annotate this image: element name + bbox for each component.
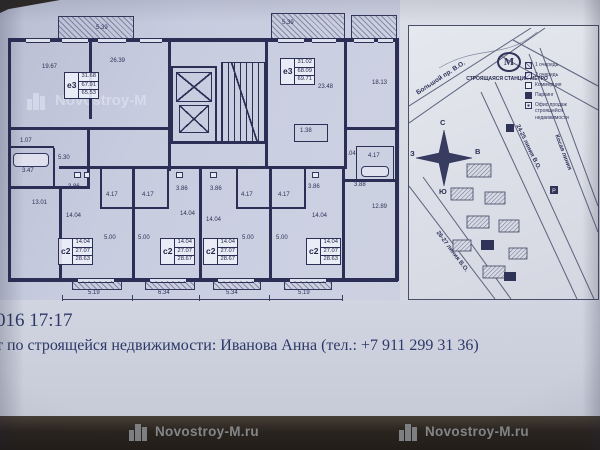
legend-label: 2 очередь xyxy=(535,72,558,78)
dim-label: 5.00 xyxy=(276,235,288,241)
dim-label: 8.04 xyxy=(344,151,356,157)
location-map: Р М СТРОЯЩАЯСЯ СТАНЦИЯ МЕТРО Большой пр.… xyxy=(408,25,599,300)
dim-label: 14.04 xyxy=(180,211,195,217)
legend-item: Офис продаж строящейся недвижимости xyxy=(525,102,593,121)
paper-lower-band xyxy=(0,300,600,417)
legend-label: 1 очередь xyxy=(535,62,558,68)
wall xyxy=(59,188,62,280)
legend-label: Офис продаж строящейся недвижимости xyxy=(535,102,593,121)
site-watermark-left: Novostroy-M.ru xyxy=(128,421,259,441)
kitchen-fixture xyxy=(210,172,217,178)
dim-label: 3.86 xyxy=(210,186,222,192)
apartment-area: 27.07 xyxy=(175,248,194,257)
contact-line: т по строящейся недвижимости: Иванова Ан… xyxy=(0,337,479,355)
wall xyxy=(236,207,305,209)
staircase xyxy=(221,62,268,142)
dim-label: 3.86 xyxy=(308,184,320,190)
dimension-tick xyxy=(269,295,270,301)
dim-label: 4.17 xyxy=(142,192,154,198)
dim-label: 5.34 xyxy=(226,290,238,296)
dim-label: 6.34 xyxy=(158,290,170,296)
bathtub xyxy=(13,153,49,167)
dim-label: 5.00 xyxy=(242,235,254,241)
wall xyxy=(269,169,272,279)
dim-label: 5.19 xyxy=(298,290,310,296)
dim-label: 19.67 xyxy=(42,64,57,70)
balcony xyxy=(284,281,332,290)
wall xyxy=(344,127,398,130)
dimension-line xyxy=(62,299,343,300)
legend-label: Паркинг xyxy=(535,92,554,98)
parking-letter: Р xyxy=(552,189,556,195)
apartment-area: 28.67 xyxy=(218,256,237,264)
wall xyxy=(236,169,238,209)
apartment-code: е3 xyxy=(281,59,294,84)
wall xyxy=(10,146,54,148)
apartment-area: 31.02 xyxy=(295,59,314,68)
wall xyxy=(87,129,90,189)
studio-label-4: с2 14.04 27.07 28.63 xyxy=(306,238,341,265)
wall xyxy=(8,278,398,282)
dim-label: 14.04 xyxy=(312,213,327,219)
apartment-code: с2 xyxy=(307,239,320,264)
compass-west: З xyxy=(410,149,415,158)
balcony xyxy=(72,281,122,290)
dim-label: 13.01 xyxy=(32,200,47,206)
wall xyxy=(395,38,399,281)
apartment-code: с2 xyxy=(204,239,217,264)
wall xyxy=(132,169,135,279)
apartment-code: е3 xyxy=(65,73,78,98)
dimension-tick xyxy=(62,295,63,301)
dim-label: 3.47 xyxy=(22,168,34,174)
dim-label: 18.13 xyxy=(372,80,387,86)
elevator-cabin xyxy=(176,72,212,102)
studio-label-3: с2 14.04 27.07 28.67 xyxy=(203,238,238,265)
wall xyxy=(53,148,55,188)
balcony xyxy=(213,281,261,290)
dim-label: 5.39 xyxy=(282,20,294,26)
apartment-code: с2 xyxy=(59,239,72,264)
dim-label: 5.39 xyxy=(96,25,108,31)
dim-label: 3.86 xyxy=(68,184,80,190)
dim-label: 4.17 xyxy=(106,192,118,198)
apartment-area: 69.71 xyxy=(295,76,314,84)
apartment-area: 28.63 xyxy=(73,256,92,264)
dim-label: 1.38 xyxy=(300,128,312,134)
wall xyxy=(8,38,11,281)
legend-item: Паркинг xyxy=(525,92,593,99)
dim-label: 5.00 xyxy=(138,235,150,241)
map-legend: 1 очередь 2 очередь Коммерция Паркинг Оф… xyxy=(525,62,593,124)
dim-label: 23.48 xyxy=(318,84,333,90)
apartment-code: с2 xyxy=(161,239,174,264)
legend-swatch-parking xyxy=(525,92,532,99)
compass-east: В xyxy=(475,147,480,156)
apartment-area: 14.04 xyxy=(73,239,92,248)
window xyxy=(98,38,126,43)
apartment-area: 28.63 xyxy=(321,256,340,264)
dim-label: 26.39 xyxy=(110,58,125,64)
kitchen-fixture xyxy=(176,172,183,178)
window xyxy=(62,38,88,43)
apartment-area: 67.91 xyxy=(79,82,98,91)
apartment-label-e3-left: е3 31.68 67.91 65.53 xyxy=(64,72,99,99)
dim-label: 4.17 xyxy=(241,192,253,198)
apartment-area: 68.09 xyxy=(295,68,314,77)
balcony xyxy=(145,281,195,290)
wall xyxy=(342,169,345,279)
apartment-area: 27.07 xyxy=(321,248,340,257)
apartment-area: 14.04 xyxy=(321,239,340,248)
dim-label: 5.00 xyxy=(104,235,116,241)
wall xyxy=(167,169,169,209)
wall xyxy=(344,41,347,169)
watermark-text: Novostroy-M.ru xyxy=(155,424,259,439)
legend-swatch-phase1 xyxy=(525,62,532,69)
dim-label: 4.17 xyxy=(278,192,290,198)
apartment-area: 14.04 xyxy=(218,239,237,248)
apartment-area: 27.07 xyxy=(73,248,92,257)
kitchen-fixture xyxy=(312,172,319,178)
buildings-icon xyxy=(26,90,50,110)
watermark-text: Novostroy-M.ru xyxy=(425,424,529,439)
apartment-area: 27.07 xyxy=(218,248,237,257)
timestamp-text: 016 17:17 xyxy=(0,310,73,332)
dim-label: 4.17 xyxy=(368,153,380,159)
apartment-area: 31.68 xyxy=(79,73,98,82)
compass-north: С xyxy=(440,118,445,127)
metro-icon: М xyxy=(497,52,521,72)
dim-label: 1.07 xyxy=(20,138,32,144)
dimension-tick xyxy=(199,295,200,301)
window xyxy=(140,38,162,43)
balcony xyxy=(351,15,397,38)
apartment-label-e3-mid: е3 31.02 68.09 69.71 xyxy=(280,58,315,85)
site-watermark-right: Novostroy-M.ru xyxy=(398,421,529,441)
compass-rose xyxy=(416,130,472,186)
dimension-tick xyxy=(132,295,133,301)
window xyxy=(354,38,374,43)
bathtub xyxy=(361,166,389,177)
kitchen-fixture xyxy=(84,172,90,178)
legend-item: 1 очередь xyxy=(525,62,593,69)
highlighted-building xyxy=(504,272,516,281)
studio-label-2: с2 14.04 27.07 28.67 xyxy=(160,238,195,265)
dim-label: 14.04 xyxy=(66,213,81,219)
dimension-tick xyxy=(342,295,343,301)
legend-item: Коммерция xyxy=(525,82,593,89)
dim-label: 3.86 xyxy=(176,186,188,192)
window xyxy=(312,38,336,43)
legend-swatch-phase2 xyxy=(525,72,532,79)
highlighted-building xyxy=(481,240,494,250)
legend-swatch-office xyxy=(525,102,532,109)
apartment-area: 65.53 xyxy=(79,90,98,98)
dim-label: 3.88 xyxy=(354,182,366,188)
dim-label: 12.89 xyxy=(372,204,387,210)
photo-of-floorplan-flyer: Novostroy-M xyxy=(0,0,600,450)
legend-swatch-commercial xyxy=(525,82,532,89)
studio-label-1: с2 14.04 27.07 28.63 xyxy=(58,238,93,265)
wall xyxy=(199,169,202,279)
map-poi-icon xyxy=(506,124,514,132)
dim-label: 14.04 xyxy=(206,217,221,223)
window xyxy=(278,38,304,43)
legend-label: Коммерция xyxy=(535,82,562,88)
apartment-area: 28.67 xyxy=(175,256,194,264)
elevator-cabin xyxy=(179,105,209,133)
dim-label: 5.19 xyxy=(88,290,100,296)
wall xyxy=(100,207,168,209)
wall xyxy=(304,169,306,209)
compass-south: Ю xyxy=(439,187,447,196)
apartment-area: 14.04 xyxy=(175,239,194,248)
window xyxy=(26,38,50,43)
photo-corner-shadow xyxy=(0,0,60,13)
buildings-icon xyxy=(398,421,420,441)
window xyxy=(378,38,393,43)
wall xyxy=(100,169,102,209)
buildings-icon xyxy=(128,421,150,441)
wall xyxy=(59,166,345,169)
legend-item: 2 очередь xyxy=(525,72,593,79)
kitchen-fixture xyxy=(74,172,81,178)
dim-label: 5.30 xyxy=(58,155,70,161)
